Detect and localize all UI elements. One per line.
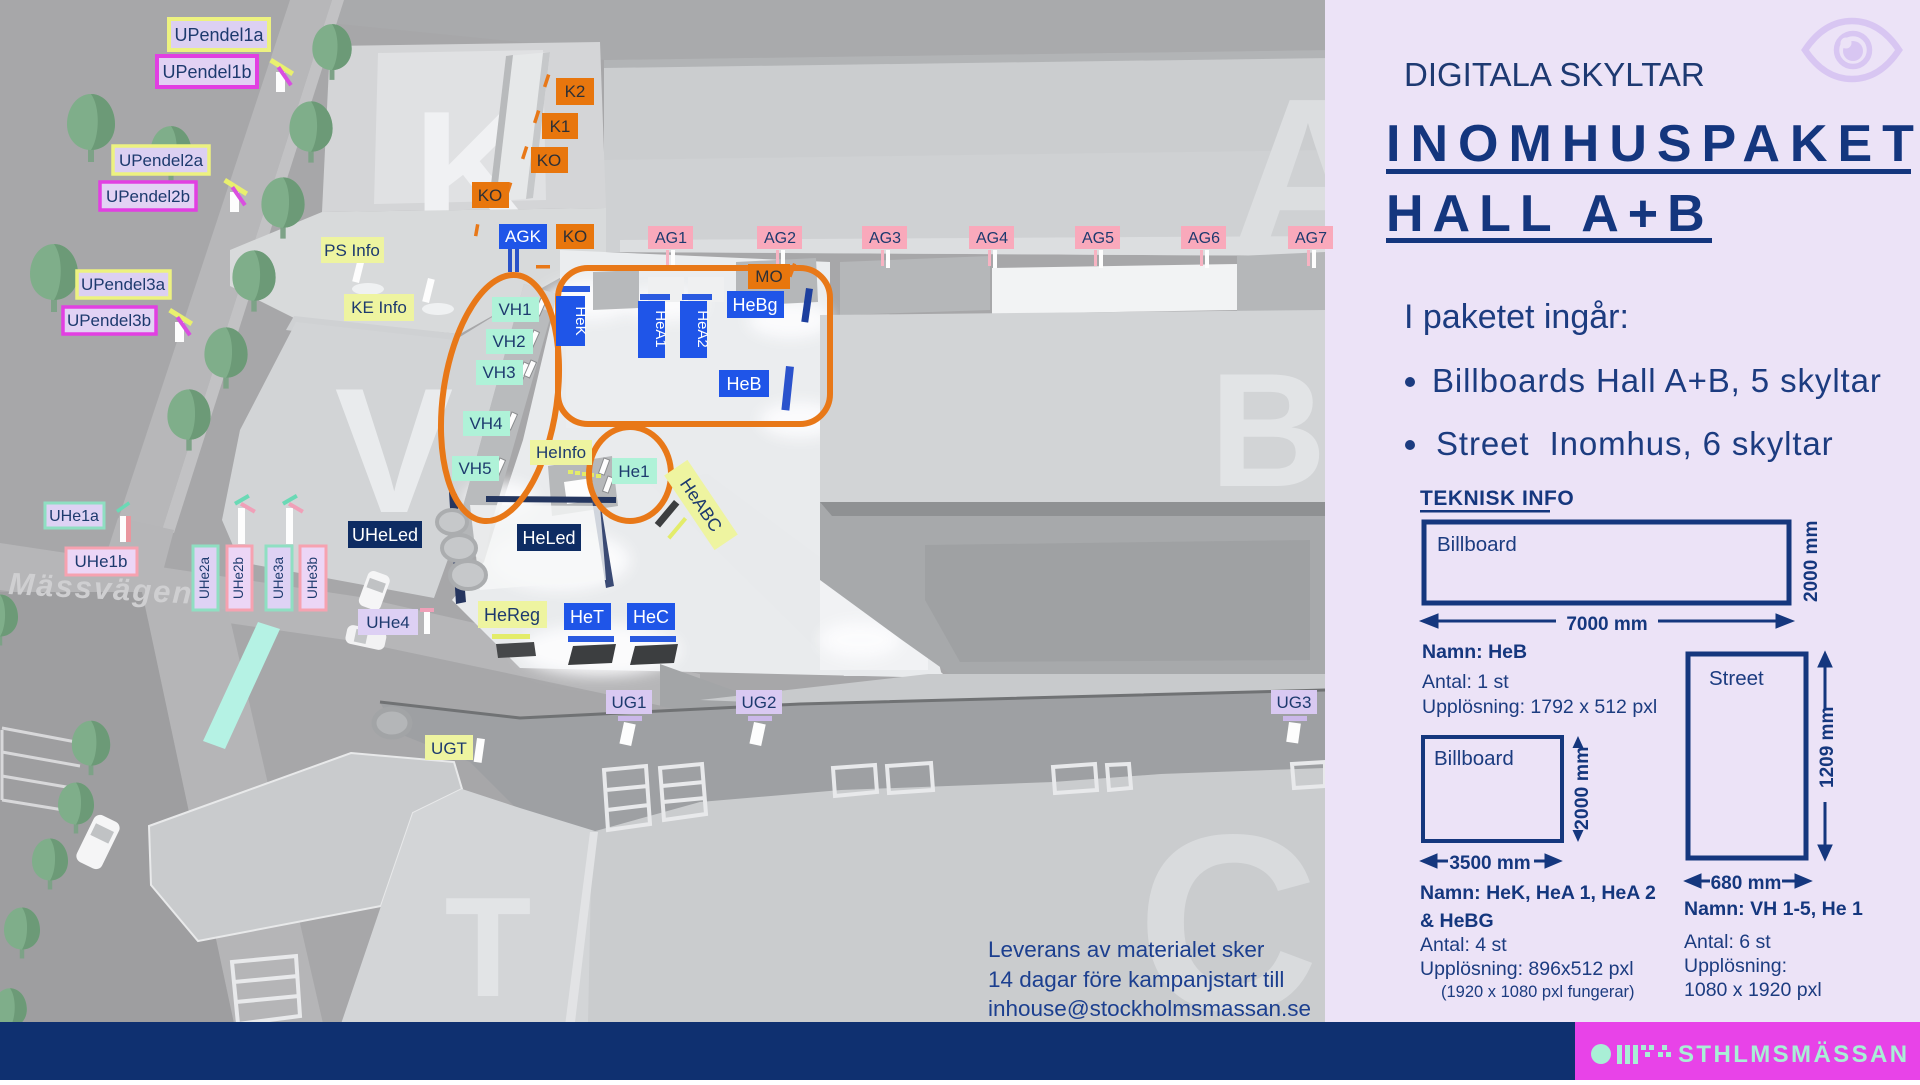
svg-text:7000 mm: 7000 mm [1566, 614, 1647, 635]
svg-text:UHe1b: UHe1b [75, 552, 128, 571]
svg-text:T: T [445, 868, 532, 1027]
svg-text:UHe3b: UHe3b [305, 557, 320, 599]
svg-text:HeInfo: HeInfo [536, 443, 586, 462]
svg-text:UHe4: UHe4 [366, 613, 409, 632]
svg-text:UPendel3a: UPendel3a [81, 275, 166, 294]
svg-text:HeReg: HeReg [484, 605, 540, 625]
svg-text:AG1: AG1 [655, 230, 687, 247]
svg-text:HeLed: HeLed [522, 528, 575, 548]
svg-text:Billboard: Billboard [1434, 747, 1514, 770]
svg-text:Namn: HeB: Namn: HeB [1422, 641, 1527, 663]
svg-text:AGK: AGK [505, 227, 542, 246]
svg-text:PS Info: PS Info [324, 241, 380, 260]
svg-text:KO: KO [478, 186, 503, 205]
svg-text:VH1: VH1 [498, 300, 531, 319]
svg-text:HeK: HeK [572, 306, 589, 335]
svg-text:UPendel1b: UPendel1b [162, 62, 251, 82]
svg-text:HeB: HeB [726, 374, 761, 394]
svg-text:C: C [1137, 783, 1319, 1064]
svg-text:MO: MO [755, 267, 782, 286]
svg-text:VH3: VH3 [482, 363, 515, 382]
svg-text:INOMHUSPAKET: INOMHUSPAKET [1386, 115, 1920, 173]
svg-text:Street Inomhus, 6 skyltar: Street Inomhus, 6 skyltar [1436, 425, 1834, 462]
svg-text:HeC: HeC [633, 607, 669, 627]
svg-text:inhouse@stockholmsmassan.se: inhouse@stockholmsmassan.se [988, 996, 1311, 1021]
svg-text:1080 x 1920 pxl: 1080 x 1920 pxl [1684, 979, 1822, 1001]
svg-text:(1920 x 1080 pxl fungerar): (1920 x 1080 pxl fungerar) [1441, 983, 1635, 1001]
svg-text:Upplösning: 896x512 pxl: Upplösning: 896x512 pxl [1420, 958, 1634, 980]
svg-text:UG3: UG3 [1277, 693, 1312, 712]
svg-text:UPendel1a: UPendel1a [174, 25, 264, 45]
svg-text:K2: K2 [565, 82, 586, 101]
svg-text:UHe1a: UHe1a [49, 508, 99, 525]
svg-text:UPendel2a: UPendel2a [119, 151, 204, 170]
svg-text:Namn: VH 1-5, He 1: Namn: VH 1-5, He 1 [1684, 898, 1863, 920]
svg-text:UG2: UG2 [742, 693, 777, 712]
svg-text:UGT: UGT [431, 739, 467, 758]
svg-text:DIGITALA SKYLTAR: DIGITALA SKYLTAR [1404, 56, 1705, 93]
svg-text:I paketet ingår:: I paketet ingår: [1404, 298, 1629, 336]
svg-text:UHe3a: UHe3a [271, 557, 286, 600]
svg-text:Antal: 6 st: Antal: 6 st [1684, 931, 1771, 953]
svg-text:AG3: AG3 [869, 230, 901, 247]
svg-text:UHe2a: UHe2a [197, 557, 212, 600]
svg-text:HALL A+B: HALL A+B [1386, 185, 1714, 243]
svg-text:Leverans av materialet sker: Leverans av materialet sker [988, 937, 1265, 962]
svg-text:HeBg: HeBg [732, 295, 777, 315]
svg-text:KE Info: KE Info [351, 298, 407, 317]
svg-text:Billboard: Billboard [1437, 533, 1517, 556]
svg-text:Antal: 4 st: Antal: 4 st [1420, 934, 1507, 956]
svg-text:Street: Street [1709, 667, 1764, 690]
svg-text:AG6: AG6 [1188, 230, 1220, 247]
svg-text:Upplösning:: Upplösning: [1684, 955, 1787, 977]
svg-text:Namn: HeK, HeA 1, HeA 2: Namn: HeK, HeA 1, HeA 2 [1420, 882, 1656, 904]
svg-text:& HeBG: & HeBG [1420, 910, 1494, 932]
svg-text:TEKNISK INFO: TEKNISK INFO [1420, 487, 1574, 510]
svg-text:HeA1: HeA1 [652, 310, 669, 348]
svg-text:UHe2b: UHe2b [231, 557, 246, 599]
svg-text:UG1: UG1 [612, 693, 647, 712]
svg-text:He1: He1 [618, 462, 649, 481]
svg-text:B: B [1210, 340, 1327, 521]
svg-text:2000 mm: 2000 mm [1571, 747, 1593, 830]
svg-text:HeT: HeT [570, 607, 604, 627]
svg-text:KO: KO [563, 227, 588, 246]
svg-text:VH5: VH5 [458, 459, 491, 478]
svg-text:680 mm: 680 mm [1711, 873, 1782, 894]
svg-text:VH4: VH4 [469, 414, 502, 433]
svg-text:KO: KO [537, 151, 562, 170]
svg-text:HeA2: HeA2 [694, 310, 711, 348]
svg-text:Billboards Hall A+B, 5 skyltar: Billboards Hall A+B, 5 skyltar [1432, 362, 1882, 399]
svg-text:VH2: VH2 [492, 332, 525, 351]
svg-text:UHeLed: UHeLed [352, 525, 418, 545]
svg-text:1209 mm: 1209 mm [1817, 707, 1838, 788]
svg-text:AG4: AG4 [976, 230, 1008, 247]
svg-text:AG7: AG7 [1295, 230, 1327, 247]
svg-text:STHLMSMÄSSAN: STHLMSMÄSSAN [1678, 1041, 1909, 1068]
svg-text:K1: K1 [550, 117, 571, 136]
svg-text:Upplösning: 1792 x 512 pxl: Upplösning: 1792 x 512 pxl [1422, 696, 1657, 718]
svg-text:UPendel3b: UPendel3b [67, 311, 151, 330]
svg-text:3500 mm: 3500 mm [1449, 853, 1530, 874]
svg-text:2000 mm: 2000 mm [1801, 521, 1822, 602]
svg-text:14 dagar före kampanjstart til: 14 dagar före kampanjstart till [988, 967, 1284, 992]
svg-text:Antal: 1 st: Antal: 1 st [1422, 671, 1509, 693]
svg-text:AG2: AG2 [764, 230, 796, 247]
svg-text:AG5: AG5 [1082, 230, 1114, 247]
svg-text:UPendel2b: UPendel2b [106, 187, 190, 206]
